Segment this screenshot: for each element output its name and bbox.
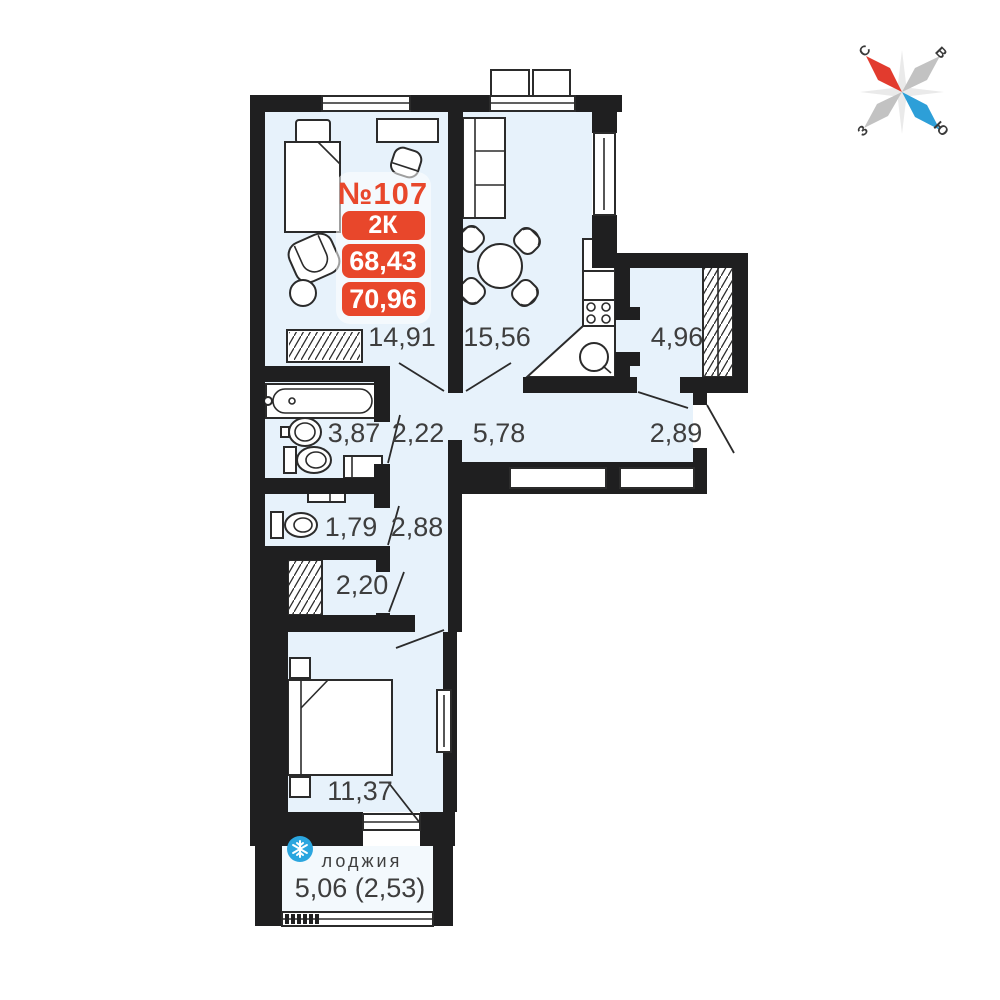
wall-segment [592,253,748,268]
wc-toilet [271,512,317,538]
area-hall-small: 2,22 [392,418,445,448]
kitchen-door-gap [463,377,523,393]
bathroom-toilet [284,447,331,473]
wall-segment [592,215,617,255]
wall-segment [680,377,748,393]
kitchen-top-window [490,96,575,111]
stove [583,300,615,326]
wall-segment [733,253,748,393]
exterior-box-1 [491,70,529,96]
wall-segment [433,846,453,926]
compass-east-arrow [902,56,940,92]
compass-rose: С В З Ю [854,41,953,139]
rooms-badge-label: 2К [368,211,398,239]
floor-plan: №107 2К 68,43 70,96 14,91 15,56 4,96 3,8… [0,0,1000,1000]
wall-segment [410,95,490,112]
wall-segment [448,112,463,393]
wall-segment [250,366,390,382]
wall-segment [250,478,390,494]
loggia-area: 5,06 (2,53) [295,873,426,903]
wall-segment [693,377,707,405]
wall-segment [374,494,390,508]
living-room-window [322,96,410,111]
wall-segment [250,548,288,846]
wall-segment [250,615,415,632]
total-area-label: 70,96 [349,284,417,314]
loggia-label: лоджия [322,851,403,871]
area-bedroom: 11,37 [327,776,393,806]
nightstand-1 [290,658,310,678]
dining-table [478,244,522,288]
corridor-niche-1 [510,468,606,488]
kitchen-sofa [463,118,505,218]
kitchen-side-window [594,133,615,215]
kitchen-cabinet [583,271,615,300]
bed-double [288,680,392,775]
hall-strip-floor [390,366,448,615]
entrance-door-leaf [707,405,734,453]
dressing-rack [703,266,733,377]
pouf [290,280,316,306]
balcony-door-sill [363,814,420,830]
exterior-box-2 [533,70,570,96]
area-closet: 2,20 [336,570,389,600]
dressing-door-gap [637,377,680,393]
wall-segment [592,112,617,133]
wall-segment [615,352,630,377]
wall-segment [255,846,282,926]
area-living-room: 14,91 [368,322,436,352]
loggia-glazing [282,912,433,926]
wall-segment [615,377,637,393]
kitchen-dressing-door-gap [615,320,630,352]
area-bathroom: 3,87 [328,418,381,448]
living-area-label: 68,43 [349,246,417,276]
area-entry-hall: 2,89 [650,418,703,448]
door-jamb [615,307,640,320]
wall-segment [250,546,390,560]
area-corridor: 5,78 [473,418,526,448]
apartment-number: №107 [338,176,428,211]
area-wc: 1,79 [325,512,378,542]
bathtub [264,384,378,418]
wall-segment [420,812,455,846]
area-kitchen: 15,56 [463,322,531,352]
desk [377,119,438,142]
loggia-snowflake-icon [287,836,313,862]
wardrobe-living [287,330,362,362]
wall-segment [374,366,390,422]
wall-segment [376,548,390,572]
closet-rack [288,560,322,615]
nightstand-2 [290,777,310,797]
area-hall: 2,88 [391,512,444,542]
bath-tap [264,397,272,405]
bed-pillow [296,120,330,143]
bedroom-window [437,690,451,752]
apartment-info: №107 2К 68,43 70,96 [336,172,431,324]
wall-segment [523,377,615,393]
wall-segment [575,95,622,112]
compass-west-arrow [864,92,902,128]
corridor-niche-2 [620,468,694,488]
area-dressing: 4,96 [651,322,704,352]
floor-plan-page: №107 2К 68,43 70,96 14,91 15,56 4,96 3,8… [0,0,1000,1000]
compass-north-label: С [855,41,873,59]
compass-north-arrow [866,56,902,92]
